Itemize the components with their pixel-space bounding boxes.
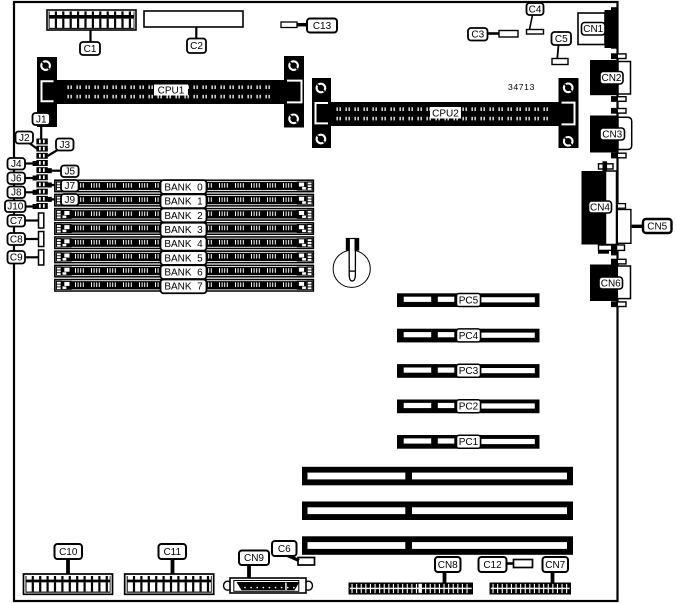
svg-text:BANK 1: BANK 1 [164,197,203,208]
svg-text:C1: C1 [84,44,97,55]
svg-text:C12: C12 [483,560,502,571]
svg-text:J4: J4 [11,159,22,170]
svg-text:C11: C11 [163,547,181,558]
svg-text:C10: C10 [59,547,78,558]
svg-text:C8: C8 [10,234,23,245]
svg-text:J6: J6 [11,174,22,185]
svg-text:J3: J3 [59,140,70,151]
svg-text:C4: C4 [529,4,542,15]
svg-text:BANK 5: BANK 5 [164,253,203,264]
svg-text:J10: J10 [7,202,24,213]
svg-text:C3: C3 [471,30,484,41]
svg-text:BANK 6: BANK 6 [164,268,203,279]
svg-text:CPU1: CPU1 [158,86,185,97]
svg-text:PC2: PC2 [459,402,479,413]
svg-text:C13: C13 [313,21,332,32]
svg-text:CN6: CN6 [601,278,621,289]
svg-text:BANK 4: BANK 4 [164,239,203,250]
svg-text:CN8: CN8 [438,560,458,571]
svg-text:34713: 34713 [508,82,535,92]
svg-text:J1: J1 [36,114,47,125]
svg-text:J8: J8 [11,188,22,199]
svg-text:C6: C6 [278,544,291,555]
svg-text:CPU2: CPU2 [432,108,459,119]
svg-text:CN4: CN4 [590,202,610,213]
svg-text:C7: C7 [10,216,23,227]
svg-text:PC1: PC1 [459,437,479,448]
svg-text:C5: C5 [555,34,568,45]
svg-text:C9: C9 [10,253,23,264]
svg-text:PC4: PC4 [459,331,479,342]
svg-text:CN3: CN3 [602,129,622,140]
svg-text:CN2: CN2 [601,73,621,84]
svg-text:J5: J5 [65,167,76,178]
svg-text:CN1: CN1 [583,24,603,35]
svg-text:BANK 0: BANK 0 [164,182,203,193]
svg-text:BANK 7: BANK 7 [164,282,203,293]
svg-text:CN9: CN9 [244,553,264,564]
svg-text:J9: J9 [65,195,76,206]
svg-text:PC5: PC5 [459,295,479,306]
svg-text:CN7: CN7 [545,560,565,571]
svg-text:BANK 2: BANK 2 [164,211,203,222]
svg-text:J7: J7 [65,181,76,192]
svg-text:PC3: PC3 [459,366,479,377]
svg-text:J2: J2 [19,133,30,144]
svg-text:BANK 3: BANK 3 [164,225,203,236]
svg-text:C2: C2 [190,41,203,52]
svg-text:CN5: CN5 [647,221,667,232]
